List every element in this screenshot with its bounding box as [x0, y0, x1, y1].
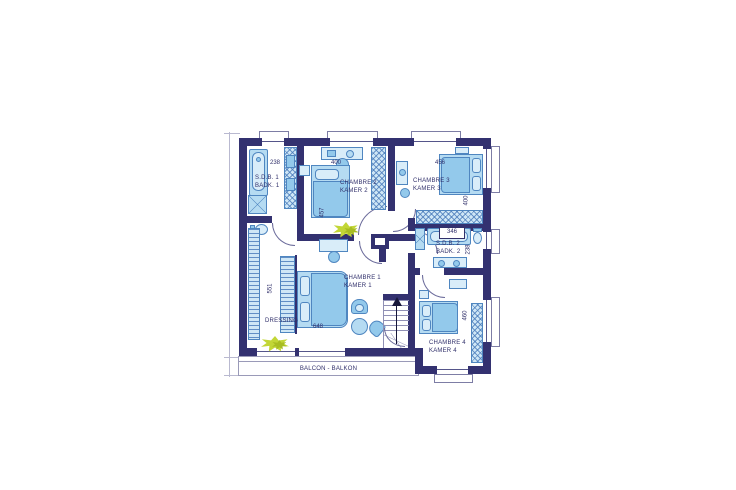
armchair: [351, 299, 368, 314]
window: [483, 232, 491, 249]
balcony-door: [299, 348, 345, 356]
window-sill: [434, 374, 473, 383]
wall-sdb1-ch2: [297, 146, 304, 241]
dim-ch3-depth: 400: [464, 189, 471, 213]
wall-sdb2-bottom-b: [444, 268, 491, 275]
balcony-edge: [238, 361, 419, 362]
window: [483, 300, 491, 342]
chimney: [371, 234, 389, 249]
dim-ch1-depth: 551: [268, 277, 275, 301]
nightstand: [455, 147, 469, 154]
room-label-ch3: CHAMBRE 3 KAMER 3: [413, 177, 450, 193]
chair: [328, 251, 340, 263]
extension-line: [229, 132, 230, 377]
dresser: [396, 161, 408, 185]
room-label-sdb1: S.D.B. 1 BADK. 1: [255, 174, 279, 190]
window: [437, 366, 468, 374]
dim-ch1-width: 648: [306, 324, 330, 331]
wardrobe: [416, 210, 483, 224]
bed: [419, 301, 458, 334]
wall-hall-top: [389, 234, 415, 241]
shower: [248, 195, 267, 214]
wall-ch2-ch3: [388, 146, 395, 211]
room-label-sdb2: S.D.B. 2 BADK. 2: [436, 240, 460, 256]
bathroom-cabinet: [284, 147, 297, 209]
floor-plan: BALCON - BALKON S.D.B. 1 BADK. 1 CHAMBRE…: [0, 0, 736, 490]
window-sill: [491, 146, 500, 193]
bed: [297, 271, 348, 328]
wall-sdb2-left-a: [408, 218, 415, 231]
window: [262, 138, 284, 146]
toilet-bowl: [473, 232, 482, 244]
dim-ch2-width: 400: [324, 160, 348, 167]
wardrobe: [471, 303, 483, 363]
wall-sdb2-bottom-a: [408, 268, 420, 275]
round-table: [351, 318, 368, 335]
desk: [449, 279, 467, 289]
window: [414, 138, 456, 146]
stool: [400, 188, 410, 198]
dim-ch3-width: 456: [428, 160, 452, 167]
wall-sdb1-bottom: [247, 216, 272, 223]
up-arrow-icon: [392, 297, 402, 306]
double-washbasin: [433, 257, 467, 268]
nightstand: [419, 290, 429, 299]
balcony-window: [257, 348, 295, 356]
window-sill: [491, 297, 500, 347]
window-sill: [491, 229, 500, 254]
room-label-ch4: CHAMBRE 4 KAMER 4: [429, 339, 466, 355]
dim-sdb2-depth: 238: [466, 238, 473, 262]
dim-sdb1-width: 238: [263, 160, 287, 167]
stair-arrow-stem: [396, 304, 397, 344]
dim-sdb2-width: 346: [439, 227, 465, 239]
room-label-dressing: DRESSING: [265, 317, 298, 325]
door-arc-ch2: [358, 206, 387, 235]
door-arc-sdb1: [272, 223, 295, 246]
wardrobe: [248, 228, 260, 340]
shower: [415, 228, 425, 250]
nightstand: [299, 165, 310, 176]
wall-left: [239, 138, 247, 356]
extension-tick: [224, 133, 240, 134]
balcony-label: BALCON - BALKON: [238, 365, 419, 373]
room-label-ch1: CHAMBRE 1 KAMER 1: [344, 274, 381, 290]
room-label-ch2: CHAMBRE 2 KAMER 2: [340, 179, 377, 195]
dim-ch4-depth: 460: [463, 304, 470, 328]
dim-ch2-depth: 457: [320, 201, 327, 225]
window: [330, 138, 373, 146]
window: [483, 149, 491, 188]
